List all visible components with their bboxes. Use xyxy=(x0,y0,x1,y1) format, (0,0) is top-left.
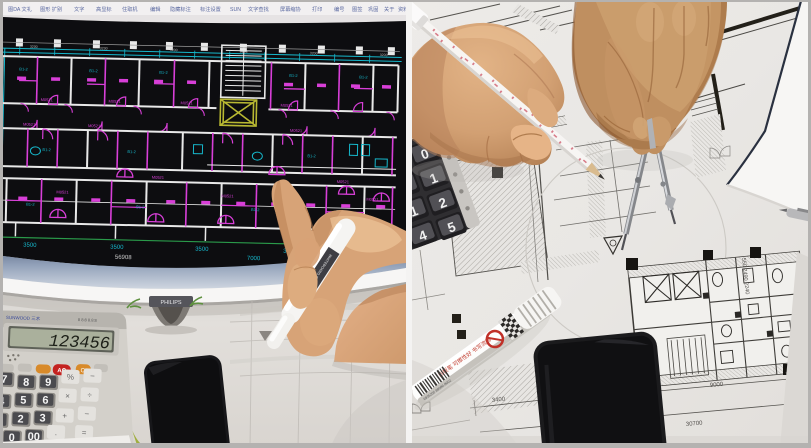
svg-text:.: . xyxy=(55,428,58,437)
svg-text:住取机: 住取机 xyxy=(122,5,138,13)
svg-text:B1-2: B1-2 xyxy=(127,149,136,154)
svg-text:B1-2: B1-2 xyxy=(289,73,298,78)
svg-text:6: 6 xyxy=(42,394,49,406)
svg-text:编号: 编号 xyxy=(334,5,344,13)
svg-text:M0521: M0521 xyxy=(181,100,194,105)
svg-text:M0521: M0521 xyxy=(337,179,350,184)
svg-text:123456: 123456 xyxy=(48,333,110,355)
svg-text:×: × xyxy=(65,391,70,400)
svg-text:打印: 打印 xyxy=(312,5,322,13)
svg-text:−: − xyxy=(90,372,95,381)
svg-text:M0521: M0521 xyxy=(109,99,122,104)
svg-text:巩固: 巩固 xyxy=(368,6,378,13)
svg-text:隐藏标注: 隐藏标注 xyxy=(170,5,191,13)
svg-text:M0521: M0521 xyxy=(366,197,379,202)
svg-text:M0521: M0521 xyxy=(221,193,234,198)
svg-text:−: − xyxy=(84,409,89,418)
svg-text:M0521: M0521 xyxy=(41,97,54,102)
svg-text:B1-2: B1-2 xyxy=(19,66,28,71)
svg-text:编辑: 编辑 xyxy=(150,5,160,13)
svg-text:图DA 文礼: 图DA 文礼 xyxy=(8,5,32,13)
svg-text:文字查找: 文字查找 xyxy=(248,5,270,13)
svg-text:7000: 7000 xyxy=(247,256,261,262)
svg-text:B1-2: B1-2 xyxy=(307,153,316,158)
svg-text:3500: 3500 xyxy=(23,243,37,249)
svg-text:关于: 关于 xyxy=(384,5,394,13)
svg-text:8 8:8 8.8:8: 8 8:8 8.8:8 xyxy=(78,317,98,323)
svg-text:B1-2: B1-2 xyxy=(159,70,168,75)
svg-text:9: 9 xyxy=(45,377,52,389)
svg-text:9000: 9000 xyxy=(710,382,724,389)
svg-text:2: 2 xyxy=(17,413,24,425)
svg-text:3500: 3500 xyxy=(195,247,209,253)
svg-text:SUN: SUN xyxy=(230,7,241,13)
svg-text:B1-2: B1-2 xyxy=(89,68,98,73)
svg-text:3500: 3500 xyxy=(110,245,124,251)
svg-text:M0521: M0521 xyxy=(152,175,165,180)
svg-text:+: + xyxy=(62,411,67,420)
svg-text:图形 扩别: 图形 扩别 xyxy=(40,5,62,13)
svg-text:图签: 图签 xyxy=(352,5,362,13)
svg-text:M0521: M0521 xyxy=(290,128,303,133)
svg-text:M0521: M0521 xyxy=(280,103,293,108)
svg-text:56908: 56908 xyxy=(115,255,132,261)
svg-text:M0521: M0521 xyxy=(88,123,101,128)
svg-text:=: = xyxy=(81,428,86,437)
svg-text:屏幕缩协: 屏幕缩协 xyxy=(280,5,302,13)
svg-text:B1-2: B1-2 xyxy=(136,204,145,209)
svg-text:3: 3 xyxy=(39,412,46,424)
svg-text:%: % xyxy=(67,373,75,382)
svg-text:M0521: M0521 xyxy=(56,189,69,194)
svg-text:B1-2: B1-2 xyxy=(26,202,35,207)
svg-text:8: 8 xyxy=(23,377,30,389)
svg-text:B1-2: B1-2 xyxy=(359,74,368,79)
svg-text:B1-2: B1-2 xyxy=(251,207,260,212)
svg-text:标注设置: 标注设置 xyxy=(200,5,221,13)
svg-text:B1-2: B1-2 xyxy=(42,147,51,152)
svg-text:PHILIPS: PHILIPS xyxy=(160,300,181,306)
svg-text:文字: 文字 xyxy=(74,5,84,13)
svg-text:高显标: 高显标 xyxy=(96,5,112,13)
svg-text:M0521: M0521 xyxy=(23,122,36,127)
svg-text:5: 5 xyxy=(20,395,27,407)
